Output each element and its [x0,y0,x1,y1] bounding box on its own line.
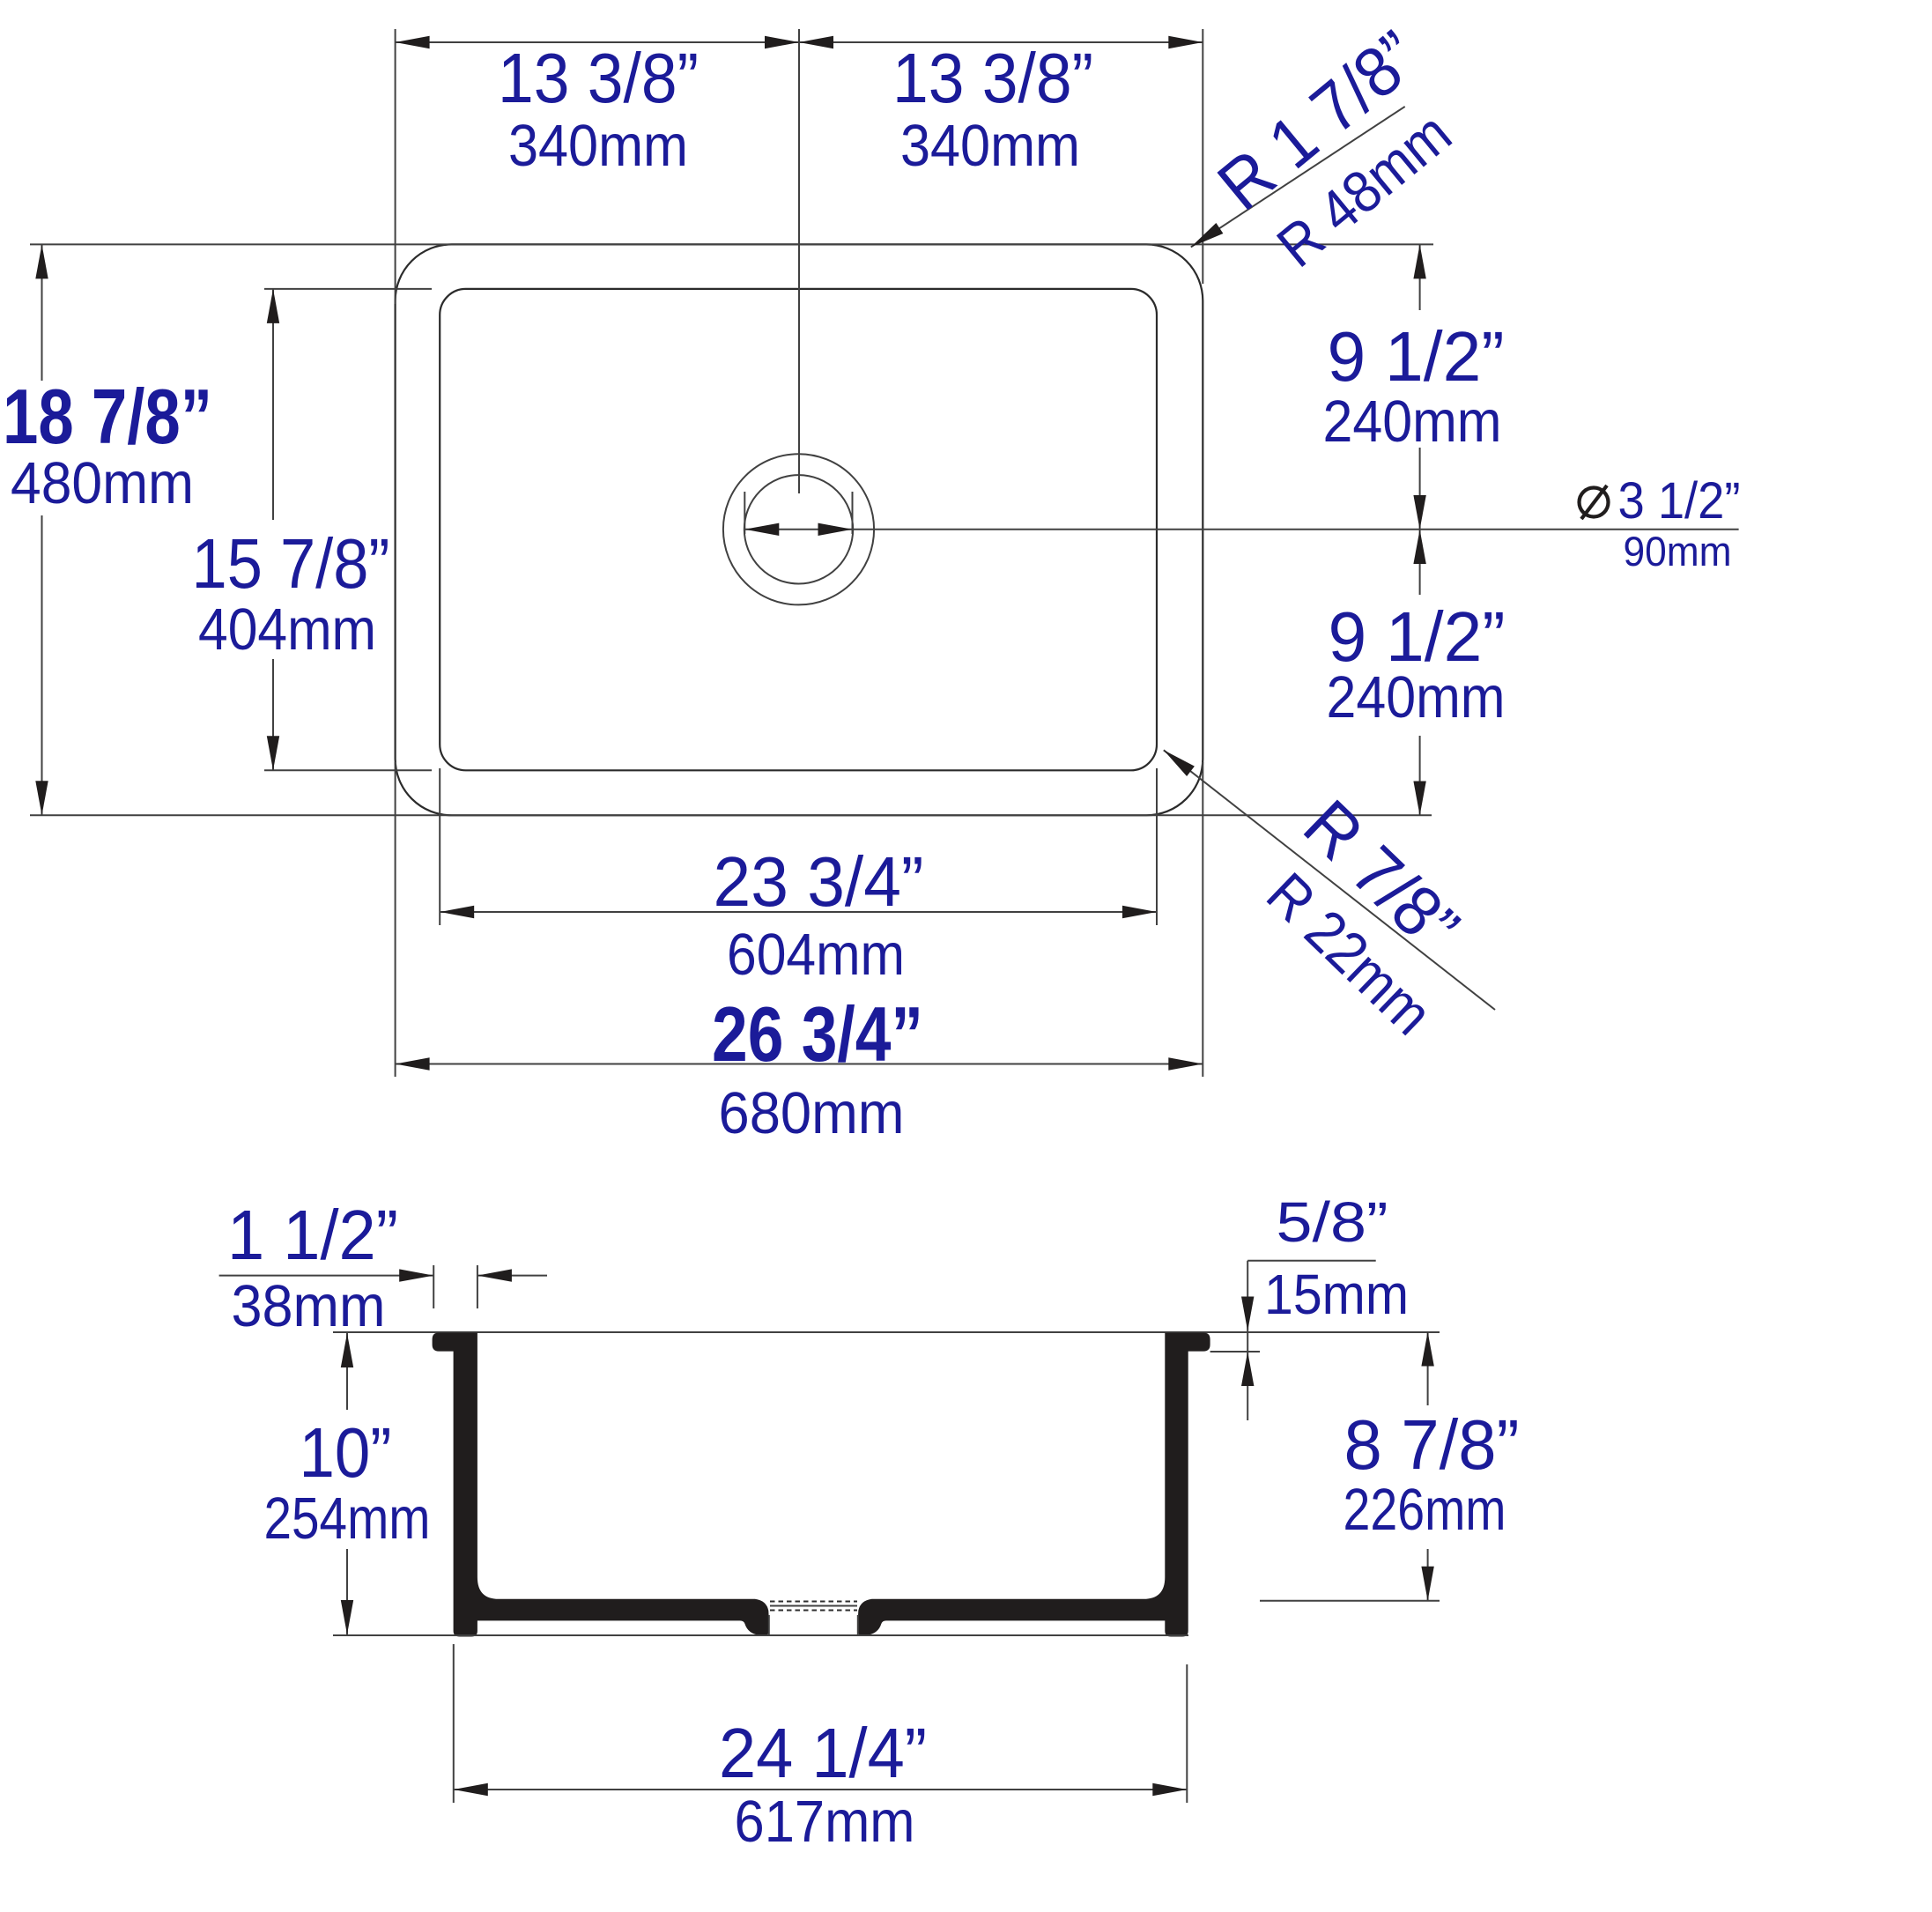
svg-text:8 7/8”: 8 7/8” [1344,1405,1520,1484]
svg-text:617mm: 617mm [735,1789,915,1855]
svg-text:3 1/2”: 3 1/2” [1618,472,1741,530]
svg-text:24 1/4”: 24 1/4” [719,1714,927,1792]
svg-text:404mm: 404mm [198,597,376,663]
svg-text:15mm: 15mm [1264,1263,1409,1326]
svg-text:340mm: 340mm [900,113,1080,179]
svg-text:13 3/8”: 13 3/8” [892,39,1093,117]
svg-text:340mm: 340mm [508,113,688,179]
svg-text:1 1/2”: 1 1/2” [227,1196,398,1274]
svg-text:254mm: 254mm [264,1486,431,1552]
svg-text:15 7/8”: 15 7/8” [192,524,390,603]
svg-text:13 3/8”: 13 3/8” [498,39,699,117]
svg-text:480mm: 480mm [11,450,194,516]
svg-text:90mm: 90mm [1624,528,1732,574]
svg-text:680mm: 680mm [719,1080,905,1146]
svg-text:226mm: 226mm [1344,1477,1506,1543]
svg-text:9 1/2”: 9 1/2” [1328,317,1505,396]
svg-text:26 3/4”: 26 3/4” [712,990,923,1078]
svg-text:10”: 10” [300,1413,392,1492]
svg-text:604mm: 604mm [727,922,905,988]
svg-text:240mm: 240mm [1327,664,1506,730]
svg-text:23 3/4”: 23 3/4” [714,842,924,921]
svg-text:5/8”: 5/8” [1277,1190,1388,1254]
svg-text:38mm: 38mm [232,1273,386,1339]
svg-text:240mm: 240mm [1323,389,1502,455]
svg-text:18 7/8”: 18 7/8” [3,373,212,460]
